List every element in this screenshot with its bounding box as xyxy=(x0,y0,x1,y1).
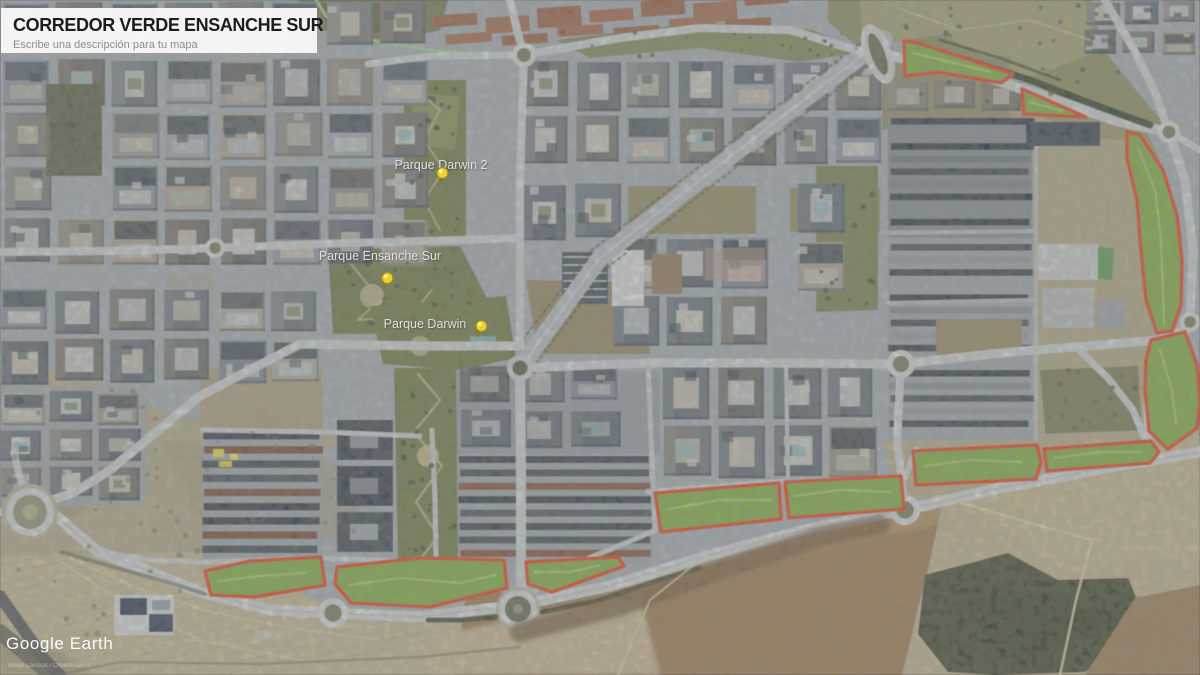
svg-text:Parque Darwin: Parque Darwin xyxy=(384,317,467,331)
svg-text:Google Earth: Google Earth xyxy=(6,634,113,653)
svg-text:CORREDOR VERDE ENSANCHE SUR: CORREDOR VERDE ENSANCHE SUR xyxy=(13,15,324,35)
svg-text:Parque Ensanche Sur: Parque Ensanche Sur xyxy=(319,249,441,263)
svg-text:Escribe una descripción para t: Escribe una descripción para tu mapa xyxy=(13,39,199,51)
svg-text:Image Landsat / Copernicus: Image Landsat / Copernicus xyxy=(8,663,83,669)
